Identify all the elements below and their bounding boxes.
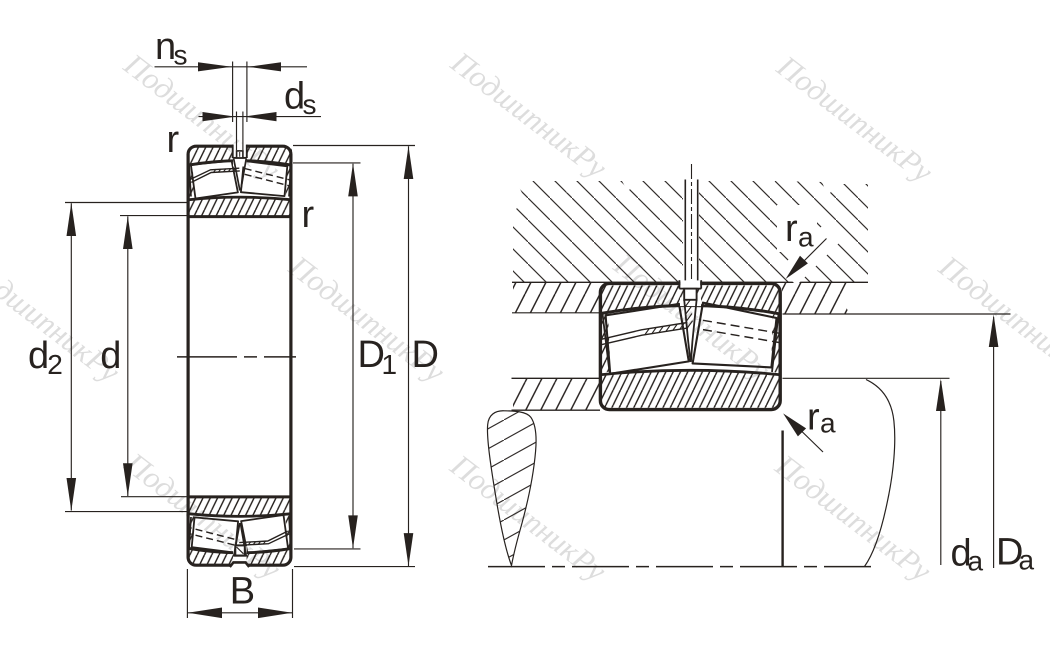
svg-text:s: s (174, 40, 188, 71)
svg-text:r: r (302, 194, 315, 236)
svg-text:B: B (230, 570, 255, 612)
svg-text:a: a (968, 546, 984, 577)
svg-text:2: 2 (47, 349, 63, 380)
svg-text:r: r (785, 208, 798, 250)
svg-text:D: D (412, 334, 439, 376)
svg-text:d: d (100, 335, 121, 377)
svg-text:a: a (798, 222, 814, 253)
svg-text:a: a (1019, 545, 1035, 576)
svg-text:a: a (820, 408, 836, 439)
svg-text:r: r (167, 119, 180, 161)
svg-text:r: r (807, 397, 820, 439)
svg-text:1: 1 (382, 349, 398, 380)
svg-text:s: s (303, 89, 317, 120)
svg-text:d: d (28, 335, 49, 377)
